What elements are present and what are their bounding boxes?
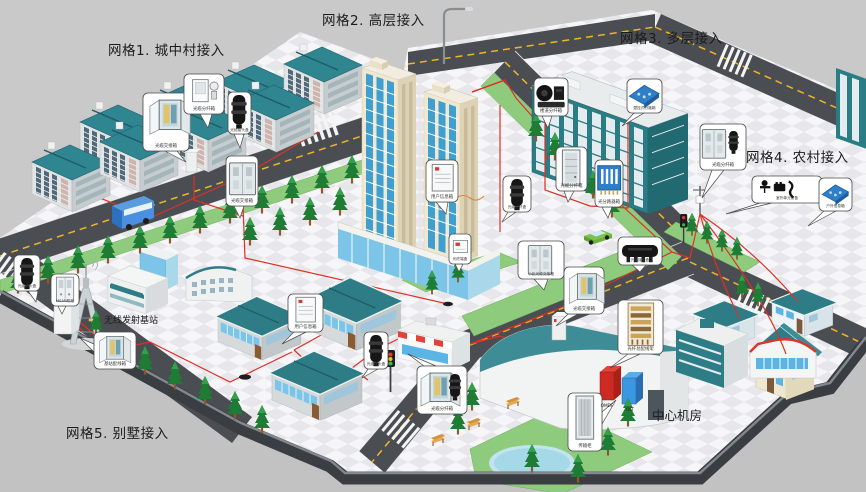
grid1-label: 网格1. 城中村接入: [108, 42, 225, 59]
edge-building: [836, 68, 866, 149]
grid4-label: 网格4. 农村接入: [746, 149, 849, 166]
callout-caption: 光缆接头盒: [230, 127, 249, 132]
network-architecture-diagram: 光缆交接箱 光缆分纤箱 光缆接头盒 光缆交接箱 用户信息箱 光终端盒 光缆分纤盒…: [0, 0, 866, 492]
callout-caption: 光缆分纤箱: [193, 105, 216, 112]
callout-caption: 光缆接头盒: [18, 283, 37, 288]
callout-caption: 用户信息箱: [431, 193, 454, 200]
callout-caption: 光缆交接箱: [155, 142, 178, 149]
callout-caption: 光终端盒: [453, 256, 468, 261]
callout-caption: 传输柜: [578, 442, 592, 449]
callout-caption: 楼道分纤箱: [540, 107, 563, 114]
omdf-cabinet: [600, 366, 621, 400]
callout-caption: 光缆分纤箱: [561, 182, 584, 189]
olt-cabinet: [622, 372, 643, 404]
callout-caption: 基站配线箱: [104, 360, 127, 367]
callout-caption: 用户信息箱: [295, 323, 318, 330]
diagram-canvas: 光缆交接箱 光缆分纤箱 光缆接头盒 光缆交接箱 用户信息箱 光终端盒 光缆分纤盒…: [0, 0, 866, 492]
olt-label: OLT: [626, 407, 634, 413]
callout-caption: 光纤总配线架: [627, 345, 654, 352]
callout-caption: 户外信息箱: [826, 203, 845, 208]
callout-caption: 光缆分纤箱: [431, 405, 454, 412]
callout-caption: 壁挂式分路箱: [633, 105, 655, 110]
callout-caption: 光缆分纤箱: [712, 161, 735, 168]
callout-caption: 小区光缆交接箱: [528, 271, 554, 276]
grid5-label: 网格5. 别墅接入: [66, 425, 169, 442]
grid3-label: 网格3. 多层接入: [620, 30, 723, 47]
callout-caption: 光缆交接箱: [573, 305, 596, 312]
callout-caption: 光缆接头盒: [367, 361, 386, 366]
callout-caption: 光缆接头盒: [631, 257, 650, 262]
callout-caption: 光分路器箱: [598, 198, 621, 205]
hangar-building: [186, 267, 252, 302]
grid2-label: 网格2. 高层接入: [322, 12, 425, 29]
callout-caption: MSAN机柜: [56, 298, 75, 303]
omdf-label: OMDF: [601, 403, 614, 409]
callout-caption: 光缆交接箱: [231, 197, 254, 204]
callout-caption: 室外单元设备: [776, 195, 798, 200]
callout-caption: 光缆分纤盒: [508, 204, 527, 209]
central-office-label: 中心机房: [652, 408, 702, 423]
wireless-base-station-label: 无线发射基站: [104, 314, 158, 326]
